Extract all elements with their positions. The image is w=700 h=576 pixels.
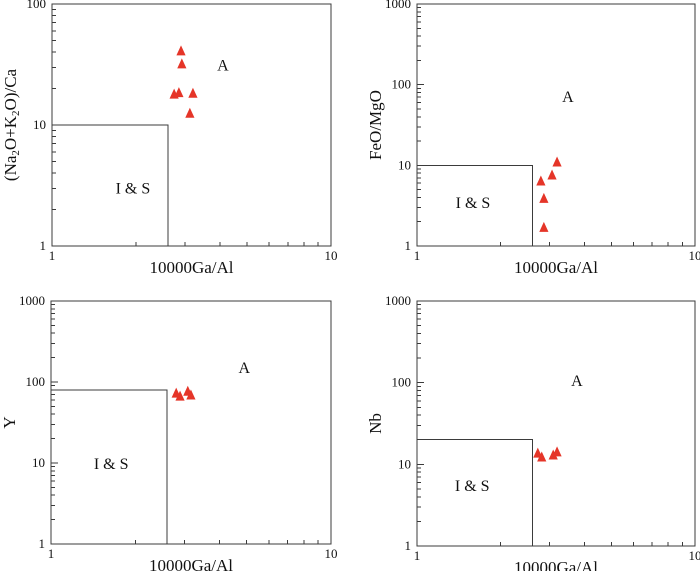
- y-tick-label: 10: [33, 117, 46, 132]
- discrimination-diagrams-figure: 110110100I & SA10000Ga/Al(Na2O+K2O)/Ca11…: [0, 0, 700, 571]
- plot-border: [417, 301, 695, 546]
- y-tick-label: 10: [32, 455, 45, 470]
- data-point-triangle: [539, 193, 548, 203]
- panel-top-left: 110110100I & SA10000Ga/Al(Na2O+K2O)/Ca: [1, 0, 338, 277]
- panel-bottom-right: 1101101001000I & SA10000Ga/AlNb: [366, 293, 700, 571]
- panel-bottom-left: 1101101001000I & SA10000Ga/AlY: [0, 293, 338, 571]
- field-label: I & S: [455, 478, 490, 495]
- x-tick-label: 10: [325, 546, 338, 561]
- field-label: A: [238, 360, 250, 377]
- data-point-triangle: [177, 58, 186, 68]
- x-axis-title: 10000Ga/Al: [149, 556, 233, 571]
- y-axis-title: FeO/MgO: [366, 90, 385, 160]
- y-tick-label: 100: [26, 374, 46, 389]
- field-label: A: [571, 373, 583, 390]
- field-boundary: [52, 125, 168, 246]
- y-tick-label: 1: [40, 238, 47, 253]
- x-tick-label: 1: [49, 248, 56, 263]
- y-tick-label: 100: [27, 0, 47, 11]
- y-tick-label: 1: [405, 238, 412, 253]
- x-axis-title: 10000Ga/Al: [514, 558, 598, 571]
- x-axis-title: 10000Ga/Al: [149, 258, 233, 277]
- field-label: I & S: [94, 456, 129, 473]
- panel-top-right: 1101101001000I & SA10000Ga/AlFeO/MgO: [366, 0, 700, 277]
- x-tick-label: 10: [689, 248, 700, 263]
- field-label: A: [562, 89, 574, 106]
- y-tick-label: 10: [398, 456, 411, 471]
- y-axis-title: (Na2O+K2O)/Ca: [1, 68, 22, 181]
- y-tick-label: 1000: [385, 293, 411, 308]
- y-tick-label: 1000: [385, 0, 411, 11]
- data-point-triangle: [547, 169, 556, 179]
- data-point-triangle: [188, 88, 197, 98]
- data-point-triangle: [176, 45, 185, 55]
- y-tick-label: 1: [39, 536, 46, 551]
- y-axis-title: Y: [0, 416, 19, 428]
- data-point-triangle: [185, 108, 194, 118]
- data-point-triangle: [539, 222, 548, 232]
- x-tick-label: 1: [48, 546, 55, 561]
- x-tick-label: 10: [689, 548, 700, 563]
- x-tick-label: 1: [414, 248, 421, 263]
- y-tick-label: 1000: [19, 293, 45, 308]
- field-label: I & S: [116, 180, 151, 197]
- plot-border: [51, 301, 331, 544]
- data-point-triangle: [552, 156, 561, 166]
- x-axis-title: 10000Ga/Al: [514, 258, 598, 277]
- field-label: A: [217, 58, 229, 75]
- y-tick-label: 1: [405, 538, 412, 553]
- quad-log-scatter-figure: 110110100I & SA10000Ga/Al(Na2O+K2O)/Ca11…: [0, 0, 700, 571]
- field-label: I & S: [456, 195, 491, 212]
- x-tick-label: 1: [414, 548, 421, 563]
- data-point-triangle: [536, 175, 545, 185]
- x-tick-label: 10: [325, 248, 338, 263]
- y-axis-title: Nb: [366, 413, 385, 434]
- y-tick-label: 100: [392, 77, 412, 92]
- y-tick-label: 100: [392, 375, 412, 390]
- y-tick-label: 10: [398, 157, 411, 172]
